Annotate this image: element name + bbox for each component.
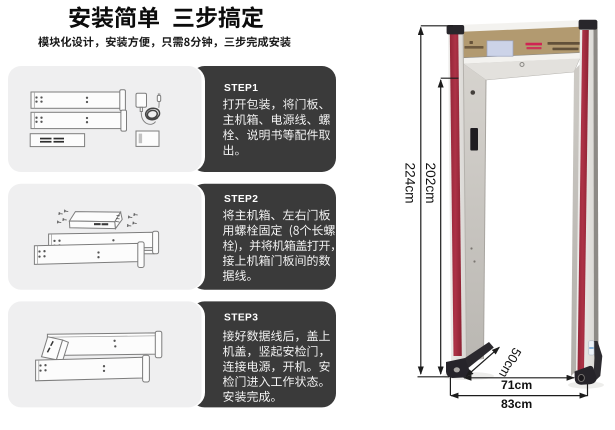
svg-text:202cm: 202cm [423,163,438,204]
svg-text:83cm: 83cm [501,397,532,411]
svg-text:STEP3: STEP3 [224,313,258,324]
svg-text:71cm: 71cm [501,378,532,392]
svg-text:STEP2: STEP2 [224,194,258,205]
svg-text:224cm: 224cm [403,163,418,204]
svg-text:STEP1: STEP1 [224,83,258,94]
